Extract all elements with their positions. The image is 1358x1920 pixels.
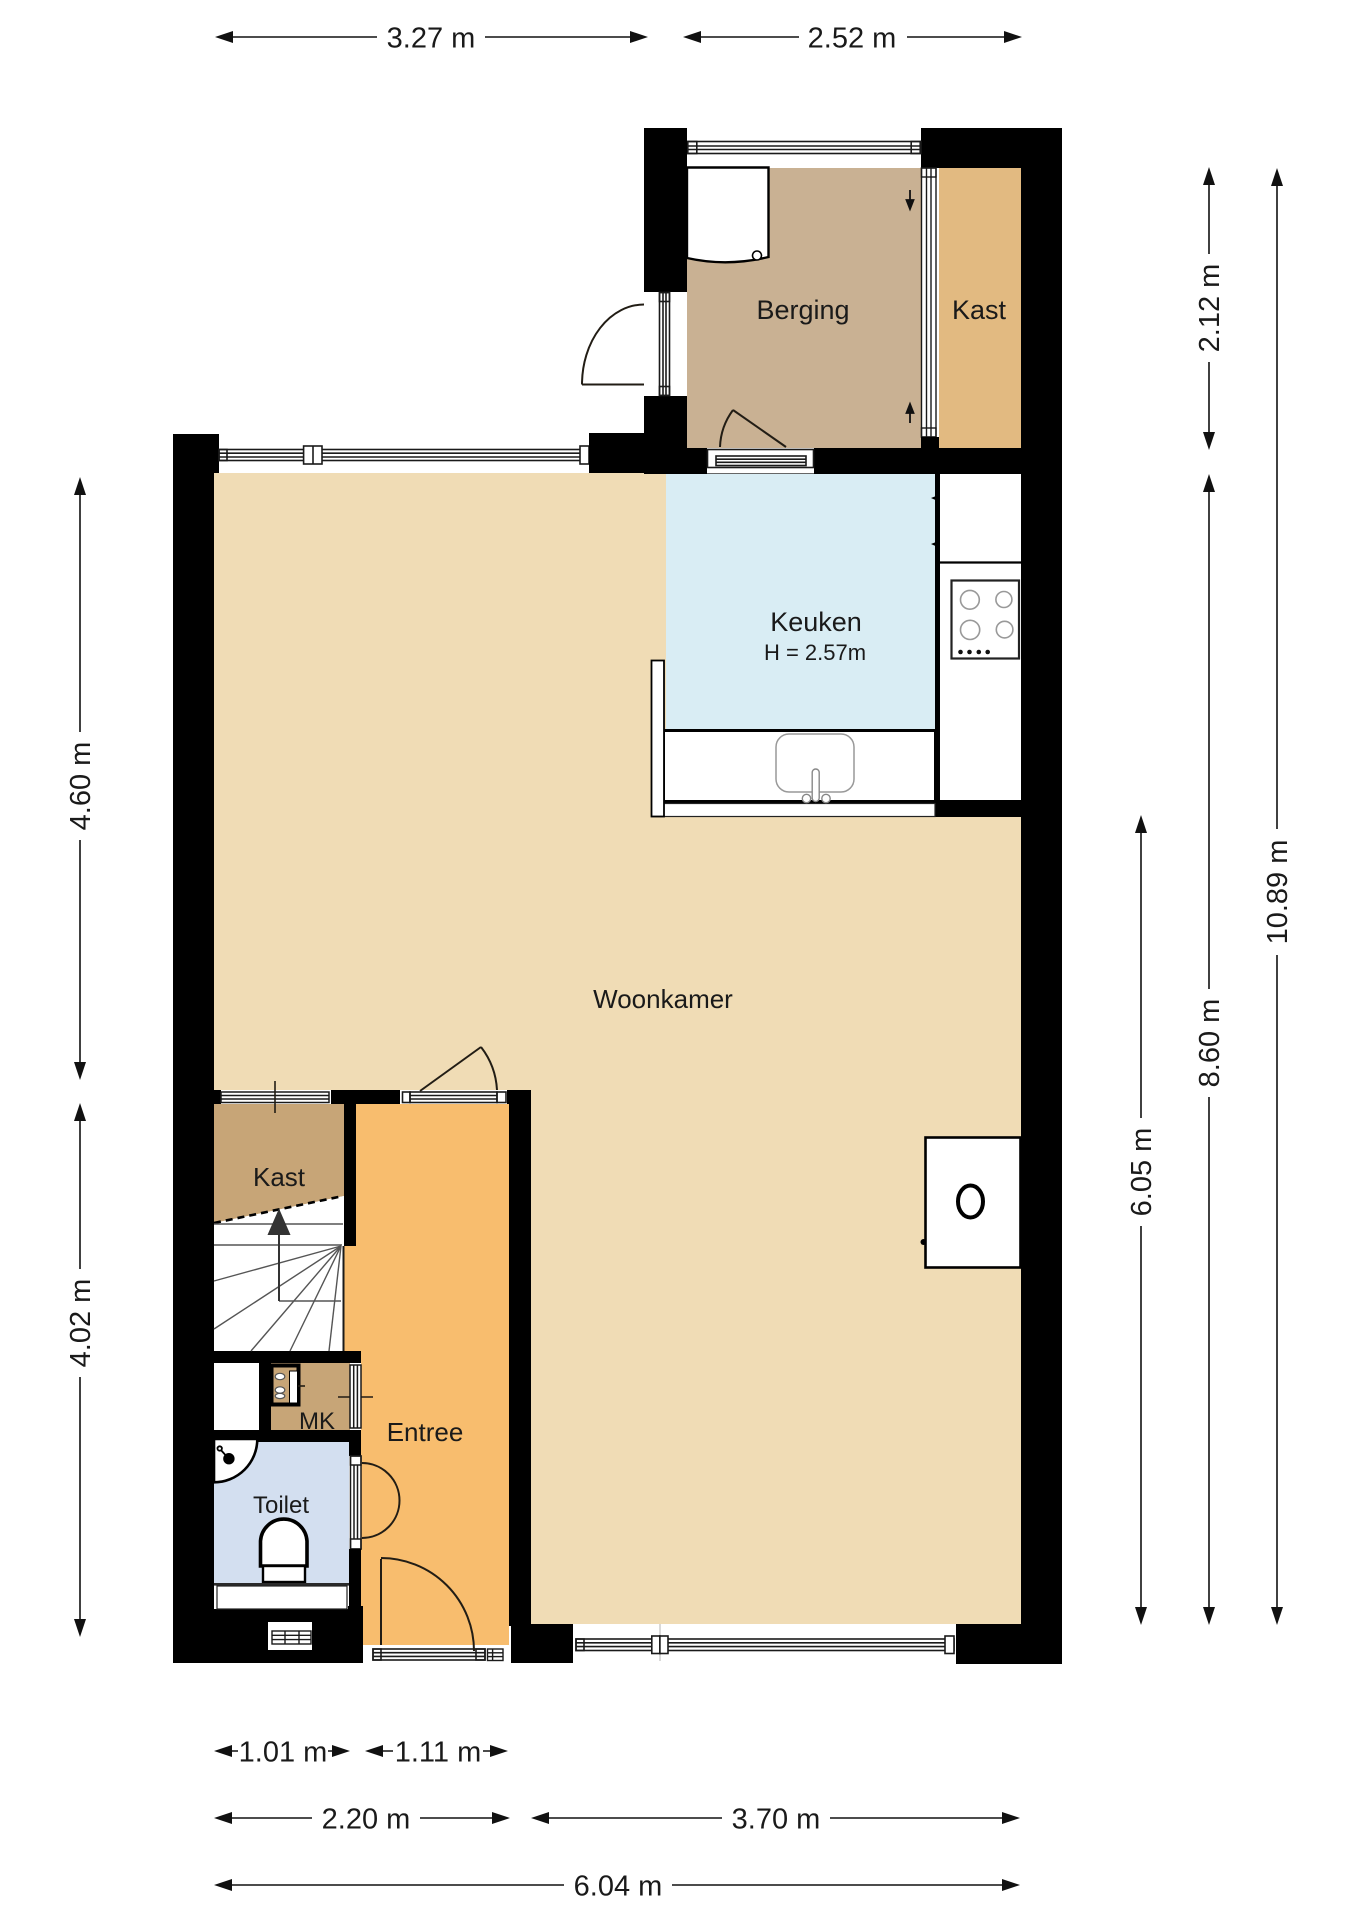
svg-text:H = 2.57m: H = 2.57m	[764, 640, 866, 665]
svg-text:2.20 m: 2.20 m	[322, 1804, 411, 1836]
svg-text:1.01 m: 1.01 m	[239, 1737, 328, 1769]
svg-text:Berging: Berging	[756, 295, 849, 325]
svg-text:Kast: Kast	[952, 295, 1007, 325]
svg-text:2.52 m: 2.52 m	[808, 23, 897, 55]
svg-text:MK: MK	[299, 1408, 335, 1435]
svg-text:6.04 m: 6.04 m	[574, 1871, 663, 1903]
svg-text:4.02 m: 4.02 m	[65, 1279, 97, 1368]
svg-text:Entree: Entree	[387, 1417, 464, 1447]
svg-text:4.60 m: 4.60 m	[65, 742, 97, 831]
svg-text:2.12 m: 2.12 m	[1194, 264, 1226, 353]
svg-text:6.05 m: 6.05 m	[1126, 1128, 1158, 1217]
svg-text:3.70 m: 3.70 m	[732, 1804, 821, 1836]
svg-text:Toilet: Toilet	[253, 1492, 309, 1519]
svg-text:10.89 m: 10.89 m	[1262, 840, 1294, 945]
svg-text:8.60 m: 8.60 m	[1194, 999, 1226, 1088]
svg-text:Kast: Kast	[253, 1162, 306, 1192]
svg-text:3.27 m: 3.27 m	[387, 23, 476, 55]
svg-text:Woonkamer: Woonkamer	[593, 984, 733, 1014]
svg-text:Keuken: Keuken	[770, 607, 862, 637]
svg-text:1.11 m: 1.11 m	[395, 1737, 482, 1769]
